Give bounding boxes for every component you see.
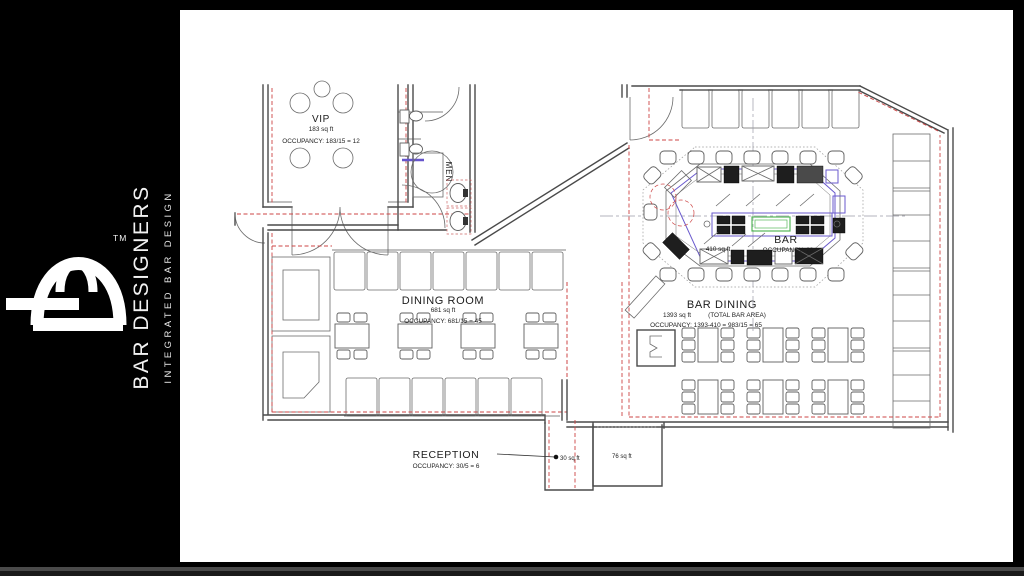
floor-plan-drawing: TM BAR DESIGNERS INTEGRATED BAR DESIGN V… — [0, 0, 1024, 576]
logo-bar-1 — [6, 298, 79, 310]
brand-text: BAR DESIGNERS INTEGRATED BAR DESIGN — [130, 184, 174, 389]
slide-bottom-band — [0, 567, 1024, 571]
reception-occupancy: OCCUPANCY: 30/5 = 6 — [413, 463, 480, 470]
dining-room-name: DINING ROOM — [402, 295, 484, 307]
bar-name: BAR — [774, 234, 797, 246]
bar-dining-name: BAR DINING — [687, 299, 757, 311]
dining-room-occupancy: OCCUPANCY: 681/15 = 45 — [404, 318, 482, 325]
reception-vestibule-area: 30 sq ft — [560, 456, 580, 462]
drawing-paper — [180, 10, 1013, 562]
trademark-mark: TM — [113, 233, 127, 243]
brand-tagline: INTEGRATED BAR DESIGN — [163, 190, 174, 383]
logo-bar-2 — [33, 318, 123, 331]
reception-name: RECEPTION — [413, 449, 480, 461]
brand-name: BAR DESIGNERS — [130, 184, 153, 389]
bar-dining-area-note: (TOTAL BAR AREA) — [708, 312, 766, 319]
vip-name: VIP — [312, 114, 330, 125]
bar-area: 410 sq ft — [706, 246, 731, 253]
bar-dining-occupancy: OCCUPANCY: 1393-410 = 983/15 = 65 — [650, 322, 762, 329]
leader-dot — [554, 455, 559, 460]
slide: TM BAR DESIGNERS INTEGRATED BAR DESIGN V… — [0, 0, 1024, 576]
vip-area: 183 sq ft — [309, 126, 334, 133]
vip-occupancy: OCCUPANCY: 183/15 = 12 — [282, 138, 360, 145]
bar-occupancy: OCCUPANCY: 29 — [763, 247, 814, 254]
reception-entry-area: 76 sq ft — [612, 454, 632, 460]
mens-restroom-name: MEN — [444, 162, 453, 183]
bar-equipment-top — [697, 166, 838, 183]
dining-room-area: 681 sq ft — [431, 307, 456, 314]
bar-dining-area-value: 1393 sq ft — [663, 312, 691, 319]
